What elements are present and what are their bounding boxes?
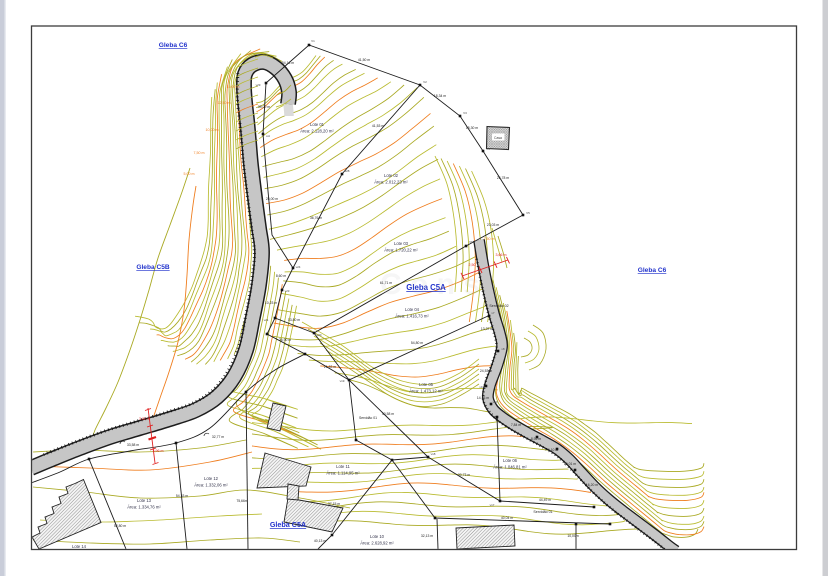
svg-text:14,53 m: 14,53 m xyxy=(477,396,489,400)
svg-text:v10: v10 xyxy=(493,400,498,404)
svg-text:v9: v9 xyxy=(479,385,483,389)
svg-text:37,15 m: 37,15 m xyxy=(328,502,340,506)
svg-text:Lote 13: Lote 13 xyxy=(137,498,152,503)
svg-text:3,66 m: 3,66 m xyxy=(496,253,507,257)
svg-text:7,50 m: 7,50 m xyxy=(484,237,495,241)
svg-text:24,53 m: 24,53 m xyxy=(480,369,492,373)
svg-text:Lote 03: Lote 03 xyxy=(394,241,409,246)
svg-text:2,50: 2,50 xyxy=(469,263,476,267)
svg-text:21,53 m: 21,53 m xyxy=(324,365,336,369)
svg-text:Área: 1.334,76 m²: Área: 1.334,76 m² xyxy=(127,505,161,510)
svg-text:Lote 01: Lote 01 xyxy=(310,122,325,127)
svg-text:V3: V3 xyxy=(463,111,467,115)
svg-text:Lote 04: Lote 04 xyxy=(405,307,420,312)
svg-text:Lote 11: Lote 11 xyxy=(336,464,350,469)
svg-text:26,78 m: 26,78 m xyxy=(497,176,509,180)
svg-text:Área: 1.720,22 m²: Área: 1.720,22 m² xyxy=(384,248,418,253)
svg-text:7,84 m: 7,84 m xyxy=(511,423,522,427)
svg-text:v18: v18 xyxy=(431,452,436,456)
svg-text:10,23 m: 10,23 m xyxy=(265,301,277,305)
svg-text:Área: 1.473,12 m²: Área: 1.473,12 m² xyxy=(409,389,443,394)
svg-text:10,00m: 10,00m xyxy=(567,534,578,538)
svg-text:Servidão 01: Servidão 01 xyxy=(359,416,377,420)
svg-text:Lote 14: Lote 14 xyxy=(72,544,87,549)
svg-text:V6: V6 xyxy=(469,240,473,244)
svg-text:v8: v8 xyxy=(501,347,505,351)
svg-text:v19: v19 xyxy=(340,379,345,383)
svg-text:3,96 m: 3,96 m xyxy=(153,449,164,453)
svg-text:v20: v20 xyxy=(317,333,322,337)
svg-text:V2: V2 xyxy=(423,80,427,84)
svg-text:3,82 m: 3,82 m xyxy=(139,417,150,421)
svg-text:Lote 10: Lote 10 xyxy=(370,534,385,539)
svg-text:Gleba C5A: Gleba C5A xyxy=(270,520,306,529)
svg-text:V5: V5 xyxy=(526,211,530,215)
svg-text:54,33 m: 54,33 m xyxy=(176,494,188,498)
svg-text:Lote 05: Lote 05 xyxy=(419,382,434,387)
svg-text:Área: 2.012,23 m²: Área: 2.012,23 m² xyxy=(374,180,408,185)
svg-text:40,04 m: 40,04 m xyxy=(501,516,513,520)
svg-text:15,30 m: 15,30 m xyxy=(466,126,478,130)
svg-text:Área: 2.128,20 m²: Área: 2.128,20 m² xyxy=(300,129,334,134)
svg-text:54,80 m: 54,80 m xyxy=(411,341,423,345)
svg-text:16,20 m: 16,20 m xyxy=(586,483,598,487)
svg-text:41,53 m: 41,53 m xyxy=(372,124,384,128)
svg-text:v23: v23 xyxy=(285,289,290,293)
svg-text:26,90 m: 26,90 m xyxy=(279,338,291,342)
svg-text:23,03 m: 23,03 m xyxy=(487,223,499,227)
svg-text:6,10 m: 6,10 m xyxy=(548,448,559,452)
svg-text:30,73 m: 30,73 m xyxy=(458,473,470,477)
svg-text:Lote 12: Lote 12 xyxy=(204,476,219,481)
svg-text:Lote 06: Lote 06 xyxy=(503,458,518,463)
svg-text:V1: V1 xyxy=(311,39,315,43)
svg-text:36,76 m: 36,76 m xyxy=(310,216,322,220)
svg-text:7,50 m: 7,50 m xyxy=(194,151,205,155)
svg-text:40,13 m: 40,13 m xyxy=(314,539,326,543)
svg-text:Área: 1.332,06 m²: Área: 1.332,06 m² xyxy=(194,483,228,488)
svg-text:5,00 m: 5,00 m xyxy=(184,172,195,176)
svg-text:12,50 m: 12,50 m xyxy=(218,101,231,105)
svg-text:Gleba C6: Gleba C6 xyxy=(159,42,188,49)
svg-text:Área: 1.046,81 m²: Área: 1.046,81 m² xyxy=(493,465,527,470)
svg-text:54,16 m: 54,16 m xyxy=(282,61,294,65)
svg-text:v29: v29 xyxy=(256,83,261,87)
svg-text:32,13 m: 32,13 m xyxy=(421,534,433,538)
svg-text:13,37 m: 13,37 m xyxy=(481,327,493,331)
svg-text:col: col xyxy=(266,134,270,138)
svg-text:52,80 m: 52,80 m xyxy=(114,524,126,528)
svg-text:v28: v28 xyxy=(345,169,350,173)
svg-text:Área: 2.628,92 m²: Área: 2.628,92 m² xyxy=(360,541,394,546)
svg-text:10,01 m: 10,01 m xyxy=(564,462,576,466)
svg-text:44,49 m: 44,49 m xyxy=(539,498,551,502)
svg-text:Gleba C6: Gleba C6 xyxy=(638,267,667,274)
svg-text:13,80 m: 13,80 m xyxy=(288,318,300,322)
svg-text:39,00 m: 39,00 m xyxy=(258,105,270,109)
svg-text:15,00 m: 15,00 m xyxy=(227,85,240,89)
svg-text:Servidão 02: Servidão 02 xyxy=(489,304,508,308)
svg-text:C o n s: C o n s xyxy=(380,268,480,301)
svg-text:v17: v17 xyxy=(490,503,495,507)
svg-text:40,58 m: 40,58 m xyxy=(382,412,394,416)
svg-text:28,00 m: 28,00 m xyxy=(266,197,278,201)
svg-text:V4: V4 xyxy=(486,147,490,151)
svg-text:8,60 m: 8,60 m xyxy=(276,274,287,278)
svg-text:Casa: Casa xyxy=(494,136,502,140)
svg-text:18,34 m: 18,34 m xyxy=(434,94,446,98)
svg-text:10,00 m: 10,00 m xyxy=(206,128,219,132)
svg-text:Servidão 01: Servidão 01 xyxy=(533,510,552,514)
svg-text:Área: 1.114,95 m²: Área: 1.114,95 m² xyxy=(326,471,360,476)
svg-text:8,95 m: 8,95 m xyxy=(531,437,542,441)
svg-text:75,66m: 75,66m xyxy=(236,499,247,503)
svg-text:Lote 02: Lote 02 xyxy=(384,173,399,178)
svg-text:Gleba C5B: Gleba C5B xyxy=(136,264,170,271)
svg-text:v24: v24 xyxy=(296,265,301,269)
svg-text:41,50 m: 41,50 m xyxy=(358,58,370,62)
svg-text:v7: v7 xyxy=(491,311,495,315)
svg-text:v21: v21 xyxy=(264,318,269,322)
svg-text:Área: 1.416,73 m²: Área: 1.416,73 m² xyxy=(395,314,429,319)
svg-text:33,58 m: 33,58 m xyxy=(127,443,139,447)
svg-text:32,77 m: 32,77 m xyxy=(212,435,224,439)
